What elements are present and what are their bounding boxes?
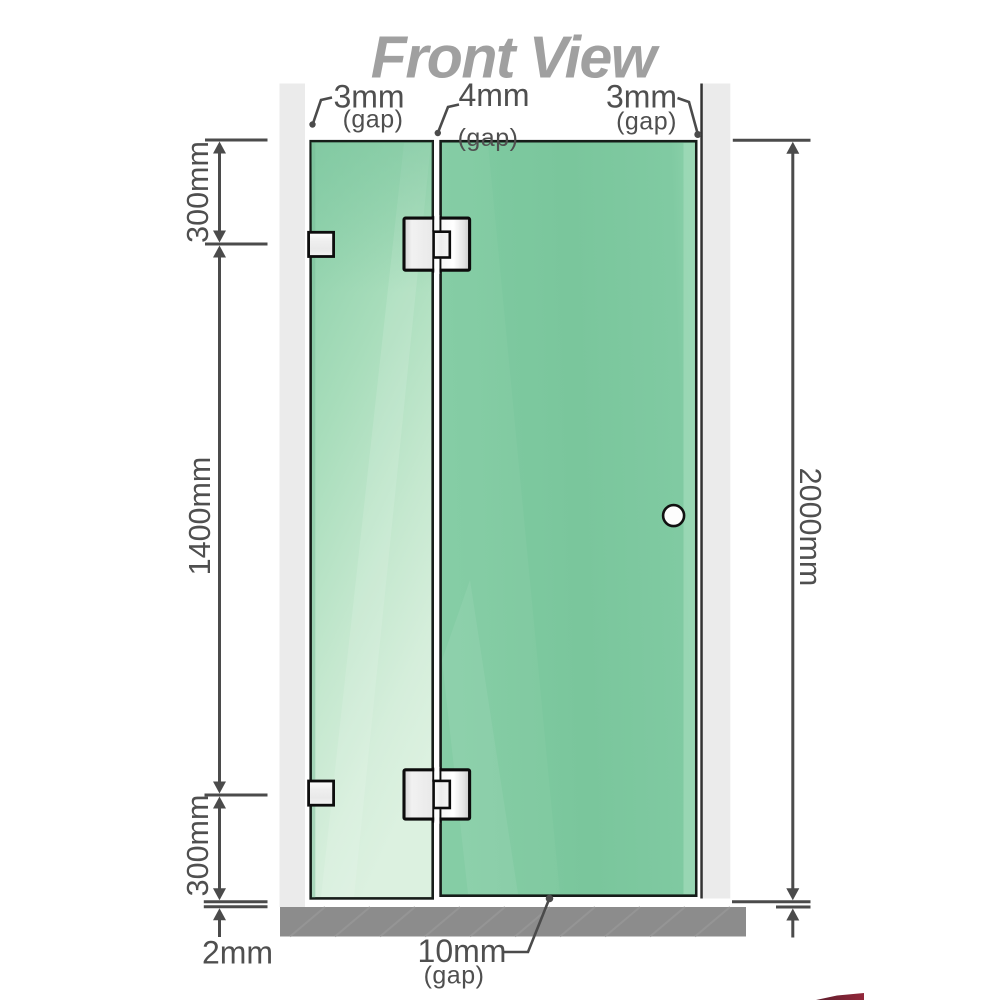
svg-text:(gap): (gap) <box>343 106 404 134</box>
svg-text:300mm: 300mm <box>181 795 215 897</box>
svg-text:2mm: 2mm <box>202 935 273 971</box>
svg-text:1400mm: 1400mm <box>183 457 217 576</box>
svg-text:300mm: 300mm <box>181 141 215 243</box>
svg-text:(gap): (gap) <box>424 962 485 990</box>
svg-text:(gap): (gap) <box>458 124 519 152</box>
svg-text:2000mm: 2000mm <box>793 468 827 587</box>
svg-text:(gap): (gap) <box>616 108 677 136</box>
svg-text:4mm: 4mm <box>458 77 529 113</box>
